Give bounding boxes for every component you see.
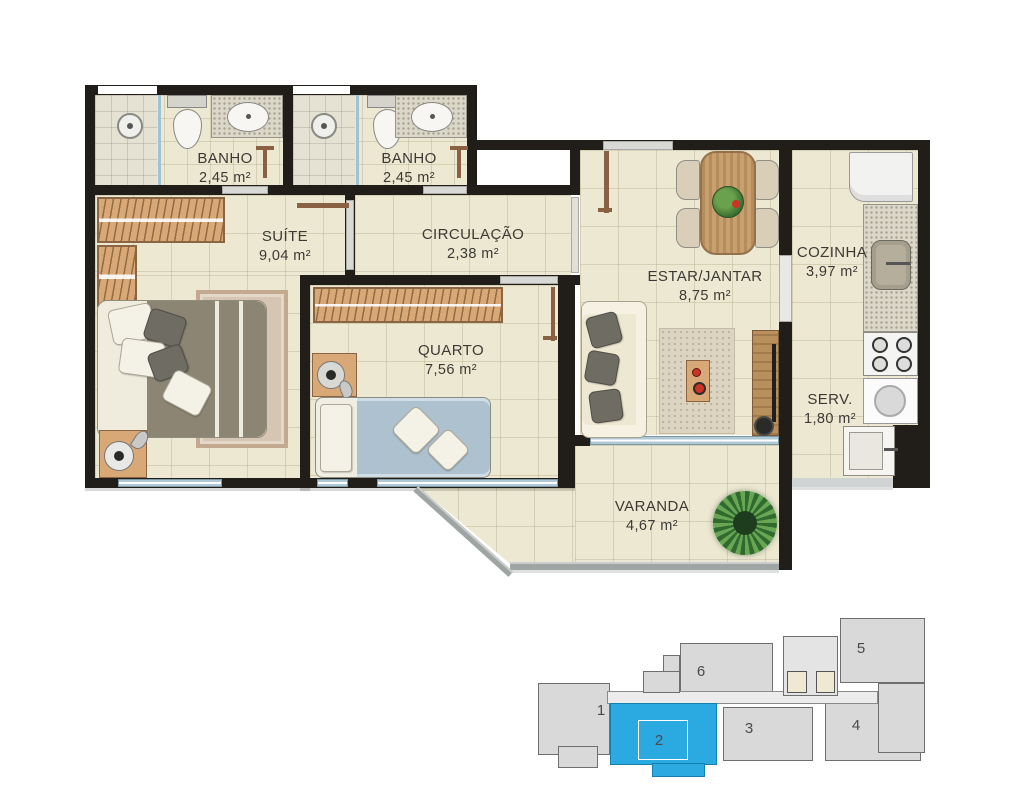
room-label-circulacao: CIRCULAÇÃO 2,38 m² [393, 226, 553, 263]
room-area: 7,56 m² [391, 361, 511, 379]
key-plan-number-1: 1 [592, 702, 610, 720]
suite-wardrobe-side [97, 245, 137, 307]
room-label-cozinha: COZINHA 3,97 m² [772, 244, 892, 281]
room-area: 2,45 m² [349, 169, 469, 187]
service-sill [792, 478, 893, 487]
room-label-servico: SERV. 1,80 m² [770, 391, 890, 428]
shower-glass [158, 95, 161, 185]
room-label-banho-1: BANHO 2,45 m² [165, 150, 285, 187]
door-threshold-bath1 [222, 186, 268, 194]
room-name: SERV. [770, 391, 890, 410]
key-plan-number-2: 2 [650, 732, 668, 750]
sofa-pillow [588, 388, 624, 424]
room-name: BANHO [165, 150, 285, 169]
window-bedroom-b [377, 479, 558, 487]
bedroom-wardrobe [313, 287, 503, 323]
void-shaft [477, 150, 570, 185]
room-name: VARANDA [592, 498, 712, 517]
suite-wardrobe [97, 197, 225, 243]
sofa-pillow [583, 349, 620, 386]
key-plan-unit-3 [723, 707, 813, 761]
key-plan-number-3: 3 [740, 720, 758, 738]
room-name: CIRCULAÇÃO [393, 226, 553, 245]
door-threshold-suite [346, 200, 354, 270]
passage-circulation-living [571, 197, 579, 273]
key-plan-elevator-cab [816, 671, 835, 693]
floor-plan: BANHO 2,45 m² BANHO 2,45 m² SUÍTE 9,04 m… [0, 0, 1021, 600]
key-plan-connector [643, 671, 680, 693]
window-bath2 [293, 86, 350, 94]
room-name: SUÍTE [225, 228, 345, 247]
stove-burner [896, 337, 912, 353]
window-bath1 [98, 86, 157, 94]
room-area: 3,97 m² [772, 263, 892, 281]
room-name: ESTAR/JANTAR [620, 268, 790, 287]
door-handle [543, 336, 557, 340]
wall [779, 435, 792, 570]
bed-pillow [320, 404, 352, 472]
wall [300, 285, 310, 478]
room-area: 8,75 m² [620, 287, 790, 305]
wall [570, 150, 580, 195]
room-name: COZINHA [772, 244, 892, 263]
dining-chair [755, 208, 779, 248]
key-plan-number-6: 6 [692, 663, 710, 681]
key-plan-unit-2-balcony [652, 763, 705, 777]
room-area: 1,80 m² [770, 410, 890, 428]
window-suite [118, 479, 222, 487]
key-plan-elevator-cab [787, 671, 807, 693]
toilet-tank [167, 95, 207, 108]
door-threshold-bedroom [500, 276, 558, 284]
coffee-table-decor [693, 382, 706, 395]
key-plan-number-4: 4 [847, 717, 865, 735]
wall [558, 285, 575, 488]
room-area: 2,45 m² [165, 169, 285, 187]
dining-chair [755, 160, 779, 200]
stove-burner [896, 356, 912, 372]
shower-area [95, 95, 157, 185]
wall [85, 185, 580, 195]
key-plan-unit-4-annex [878, 683, 925, 753]
room-area: 2,38 m² [393, 245, 553, 263]
room-area: 4,67 m² [592, 517, 712, 535]
room-label-estar-jantar: ESTAR/JANTAR 8,75 m² [620, 268, 790, 305]
window-bedroom-a [317, 479, 348, 487]
room-label-quarto: QUARTO 7,56 m² [391, 342, 511, 379]
room-name: QUARTO [391, 342, 511, 361]
stove-burner [872, 337, 888, 353]
wall [85, 85, 95, 488]
room-label-varanda: VARANDA 4,67 m² [592, 498, 712, 535]
wall [918, 140, 930, 488]
room-area: 9,04 m² [225, 247, 345, 265]
entry-door-threshold [603, 141, 673, 150]
room-name: BANHO [349, 150, 469, 169]
table-lamp-dot [114, 451, 124, 461]
shower-head-dot [127, 123, 133, 129]
balcony-plant-center [733, 511, 757, 535]
coffee-table-decor [692, 368, 701, 377]
key-plan-unit-1-annex [558, 746, 598, 768]
ebs-logo: ENGENHARIA Projetos criativos. Investime… [0, 620, 340, 780]
room-label-suite: SUÍTE 9,04 m² [225, 228, 345, 265]
dining-chair [676, 160, 700, 200]
wall [893, 425, 918, 488]
shower-head-dot [321, 123, 327, 129]
laundry-tank-basin [849, 432, 883, 470]
bedroom-door-leaf [551, 287, 555, 341]
stove-burner [872, 356, 888, 372]
suite-door-leaf [297, 203, 349, 208]
key-plan-number-5: 5 [852, 640, 870, 658]
table-decor-dot [732, 200, 740, 208]
balcony-floor-left [420, 488, 575, 565]
apartment-marketing-sheet: BANHO 2,45 m² BANHO 2,45 m² SUÍTE 9,04 m… [0, 0, 1021, 797]
fridge [849, 152, 913, 202]
faucet-dot [246, 114, 251, 119]
door-threshold-bath2 [423, 186, 467, 194]
coffee-table [686, 360, 710, 402]
room-label-banho-2: BANHO 2,45 m² [349, 150, 469, 187]
balcony-railing-bottom [510, 562, 779, 570]
wall [477, 140, 580, 150]
building-key-plan: 1 2 3 4 5 6 [528, 606, 934, 781]
dining-chair [676, 208, 700, 248]
desk-chair-center [326, 370, 336, 380]
entry-door-leaf [604, 151, 609, 213]
laundry-faucet [884, 448, 898, 451]
shower-area [293, 95, 355, 185]
door-handle [598, 208, 612, 212]
faucet-dot [430, 114, 435, 119]
